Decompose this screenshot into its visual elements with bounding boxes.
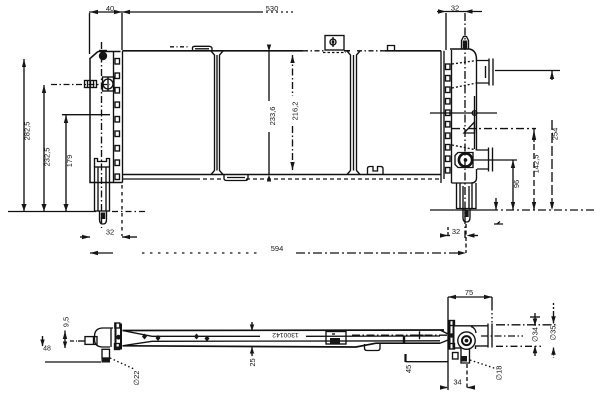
- svg-text:∅18: ∅18: [495, 366, 504, 381]
- svg-text:∅35: ∅35: [549, 326, 558, 341]
- svg-text:45: 45: [404, 365, 413, 373]
- svg-text:233,6: 233,6: [268, 107, 277, 126]
- svg-text:48: 48: [43, 346, 51, 353]
- svg-text:75: 75: [465, 288, 473, 297]
- svg-text:34: 34: [453, 378, 461, 387]
- svg-text:1300142: 1300142: [272, 331, 299, 338]
- svg-text:40: 40: [106, 4, 114, 13]
- svg-text:232,5: 232,5: [43, 148, 52, 167]
- svg-text:594: 594: [271, 244, 284, 253]
- svg-text:32: 32: [452, 227, 460, 236]
- svg-text:32: 32: [106, 228, 114, 237]
- svg-text:254: 254: [551, 128, 560, 141]
- svg-text:32: 32: [451, 4, 459, 13]
- svg-text:96: 96: [512, 180, 521, 188]
- svg-text:142,5: 142,5: [532, 155, 541, 174]
- svg-text:216,2: 216,2: [291, 102, 300, 121]
- svg-text:∅22: ∅22: [132, 371, 141, 386]
- svg-text:530: 530: [266, 4, 279, 13]
- svg-text:25: 25: [248, 358, 257, 366]
- svg-text:179: 179: [65, 155, 74, 168]
- svg-text:∅34: ∅34: [531, 327, 540, 342]
- svg-text:9,5: 9,5: [62, 317, 71, 327]
- svg-text:282,5: 282,5: [23, 122, 32, 141]
